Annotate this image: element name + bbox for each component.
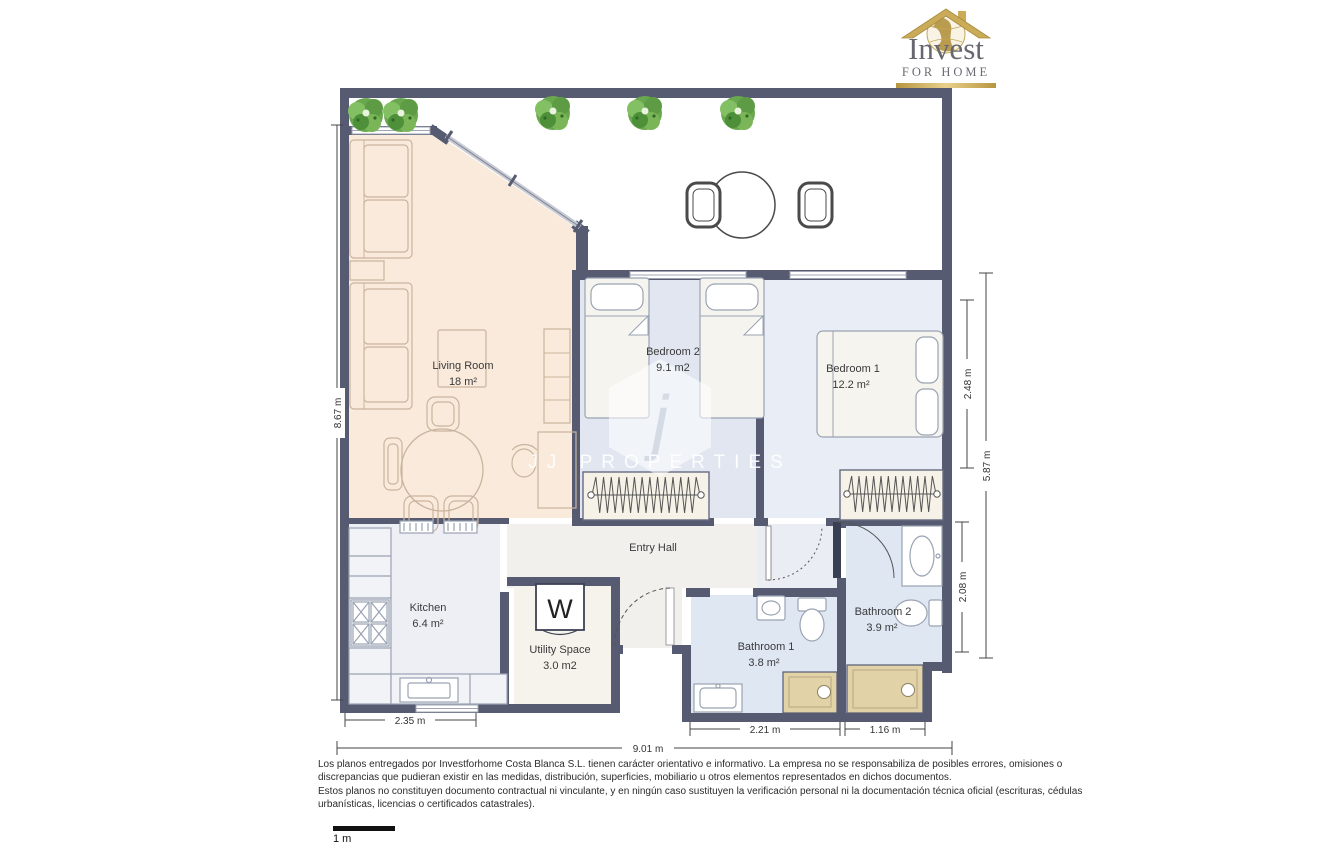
scale-bar-label: 1 m (333, 833, 395, 845)
tree-icon (720, 96, 755, 130)
dimension-right-lower: 2.08 m (958, 572, 969, 603)
bedroom1-label: Bedroom 1 (826, 363, 880, 375)
dimension-right-upper: 2.48 m (963, 369, 974, 400)
kitchen-window (416, 705, 478, 712)
bedroom1-window (790, 272, 906, 279)
wall-entrance-stub-left (611, 645, 623, 654)
kitchen-sink (400, 678, 458, 703)
terrace-chair (687, 183, 720, 227)
wall-cabinet (444, 521, 477, 533)
tree-icon (535, 96, 570, 130)
sink (757, 596, 785, 620)
vanity-sink (694, 684, 742, 712)
wall-cabinet (400, 521, 433, 533)
bedroom2-area: 9.1 m2 (656, 362, 690, 374)
terrace-chair (799, 183, 832, 227)
logo-title: Invest (896, 34, 996, 64)
disclaimer-line: Estos planos no constituyen documento co… (318, 785, 1023, 798)
disclaimer-line: discrepancias que pudieran existir en la… (318, 771, 1023, 784)
door-leaf (833, 522, 841, 578)
bedroom2-label: Bedroom 2 (646, 346, 700, 358)
wall-kitchen-bottom (340, 704, 620, 713)
wardrobe (840, 470, 943, 520)
shower-drain (818, 686, 831, 699)
wall-bathroom1-left (682, 645, 691, 722)
scale-bar: 1 m (333, 826, 395, 845)
disclaimer-text: Los planos entregados por Investforhome … (318, 758, 1023, 812)
kitchen-area: 6.4 m² (412, 618, 444, 630)
disclaimer-line: Los planos entregados por Investforhome … (318, 758, 1023, 771)
utility-label: Utility Space (529, 644, 590, 656)
dimension-bottom-total: 9.01 m (633, 744, 664, 755)
washer-label: W (547, 594, 573, 624)
bathroom1-area: 3.8 m² (748, 657, 780, 669)
kitchen-label: Kitchen (410, 602, 447, 614)
bathroom2-label: Bathroom 2 (855, 606, 912, 618)
wall-bathroom2-notch (923, 662, 952, 671)
dimension-bottom-bath2: 1.16 m (870, 725, 901, 736)
shower (783, 672, 837, 713)
wall-terrace-right (942, 88, 952, 280)
scale-bar-line (333, 826, 395, 831)
shower-drain (902, 684, 915, 697)
disclaimer-line: urbanísticas, licencias o certificados c… (318, 798, 1023, 811)
bathroom1-label: Bathroom 1 (738, 641, 795, 653)
wall-bathrooms-divider (837, 578, 846, 722)
floorplan-canvas: W (0, 0, 1320, 859)
wall-bathrooms-bottom (682, 713, 932, 722)
dimension-left-height: 8.67 m (333, 398, 344, 429)
watermark-label: JJ PROPERTIES (528, 452, 791, 473)
bathroom2-area: 3.9 m² (866, 622, 898, 634)
wall-bathroom1-top-a (686, 588, 710, 597)
toilet (798, 598, 826, 641)
wall-under-bedrooms-b (754, 518, 768, 526)
living-room-area: 18 m² (449, 376, 477, 388)
dimension-bottom-bath1: 2.21 m (750, 725, 781, 736)
dimension-right-total: 5.87 m (982, 451, 993, 482)
entry-hall-label: Entry Hall (629, 542, 677, 554)
wardrobe (583, 472, 709, 520)
utility-area: 3.0 m2 (543, 660, 577, 672)
tree-icon (627, 96, 662, 130)
logo-subtitle: FOR HOME (896, 65, 996, 80)
bedroom1-area: 12.2 m² (832, 379, 870, 391)
vanity-sink (902, 526, 942, 586)
floorplan-page: W (0, 0, 1320, 859)
shower (847, 665, 923, 713)
cooktop (351, 600, 389, 646)
invest-for-home-logo: Invest FOR HOME (896, 4, 996, 88)
dimension-bottom-kitchen: 2.35 m (395, 716, 426, 727)
washing-machine: W (536, 584, 584, 635)
logo-gold-bar (896, 83, 996, 88)
living-room-label: Living Room (432, 360, 493, 372)
